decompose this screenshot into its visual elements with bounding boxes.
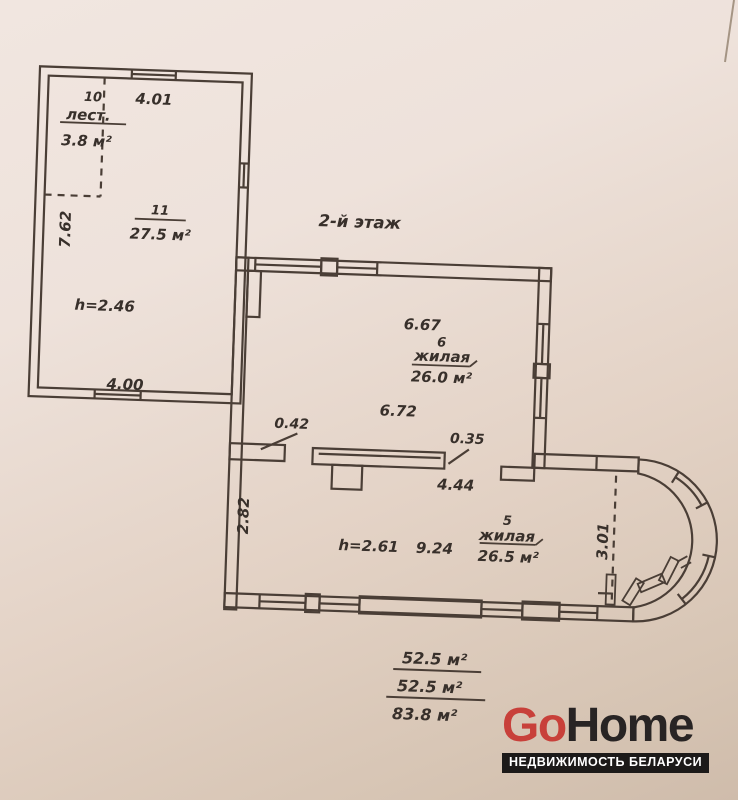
- dim-annex-left: 7.62: [56, 210, 75, 248]
- dim-room5-width: 9.24: [416, 539, 454, 558]
- logo-home-text: Home: [566, 699, 693, 752]
- room5-area: 26.5 м²: [477, 547, 539, 567]
- bay-top-wall: [534, 454, 638, 472]
- dim-annex-bottom: 4.00: [105, 375, 144, 394]
- room10-label: лест.: [66, 105, 111, 125]
- paper-edge-line: [725, 0, 734, 62]
- dim-partition-stub: 0.42: [274, 416, 309, 433]
- total-area-1: 52.5 м²: [402, 648, 468, 669]
- gohome-wordmark: GoHome: [502, 702, 709, 750]
- room5-label: жилая: [478, 526, 536, 546]
- room6-left-pier: [246, 271, 261, 317]
- room6-right-wall: [532, 268, 551, 468]
- leader-line-035: [448, 449, 469, 465]
- total-area-2: 52.5 м²: [397, 676, 463, 697]
- room10-number: 10: [84, 90, 103, 106]
- dim-annex-ceiling: h=2.46: [74, 296, 135, 316]
- partition-notch: [331, 465, 362, 490]
- partition-wall: [229, 443, 445, 492]
- room6-area: 26.0 м²: [411, 367, 473, 387]
- dim-annex-top: 4.01: [134, 90, 173, 109]
- step-pier: [501, 467, 534, 481]
- dim-partition-length: 4.44: [436, 475, 475, 494]
- leader-line-042: [261, 432, 298, 450]
- dim-room6-inner: 6.72: [379, 401, 417, 420]
- room6-label: жилая: [413, 347, 471, 367]
- gohome-logo: GoHome НЕДВИЖИМОСТЬ БЕЛАРУСИ: [502, 702, 709, 773]
- bay-tower: [633, 459, 720, 624]
- room10-area: 3.8 м²: [61, 131, 113, 151]
- label-underlines: [46, 122, 557, 545]
- total-area-3: 83.8 м²: [392, 704, 458, 725]
- room5-bottom-wall: [224, 593, 633, 621]
- floorplan-drawing: 10 лест. 3.8 м² 4.01 7.62 11 27.5 м² h=2…: [0, 0, 738, 800]
- labels-group: 10 лест. 3.8 м² 4.01 7.62 11 27.5 м² h=2…: [40, 87, 627, 730]
- room11-area: 27.5 м²: [129, 225, 191, 245]
- dim-room5-depth: 2.82: [234, 497, 253, 535]
- partition-stub: [229, 443, 285, 461]
- bay-window-midline: [682, 555, 709, 600]
- floorplan-photo: 10 лест. 3.8 м² 4.01 7.62 11 27.5 м² h=2…: [0, 0, 738, 800]
- room11-number: 11: [151, 203, 170, 219]
- logo-tagline-band: НЕДВИЖИМОСТЬ БЕЛАРУСИ: [502, 753, 709, 773]
- left-wall: [224, 257, 248, 609]
- bay-wall-arc: [633, 459, 720, 624]
- floor-title: 2-й этаж: [318, 211, 402, 233]
- bay-window-midline: [674, 477, 702, 505]
- dim-room5-ceiling: h=2.61: [338, 536, 399, 556]
- dim-room6-width: 6.67: [403, 315, 441, 334]
- logo-go-text: Go: [502, 699, 566, 752]
- dim-partition-thickness: 0.35: [450, 431, 485, 448]
- dim-bay-depth: 3.01: [593, 522, 612, 560]
- room6-top-wall: [236, 257, 551, 281]
